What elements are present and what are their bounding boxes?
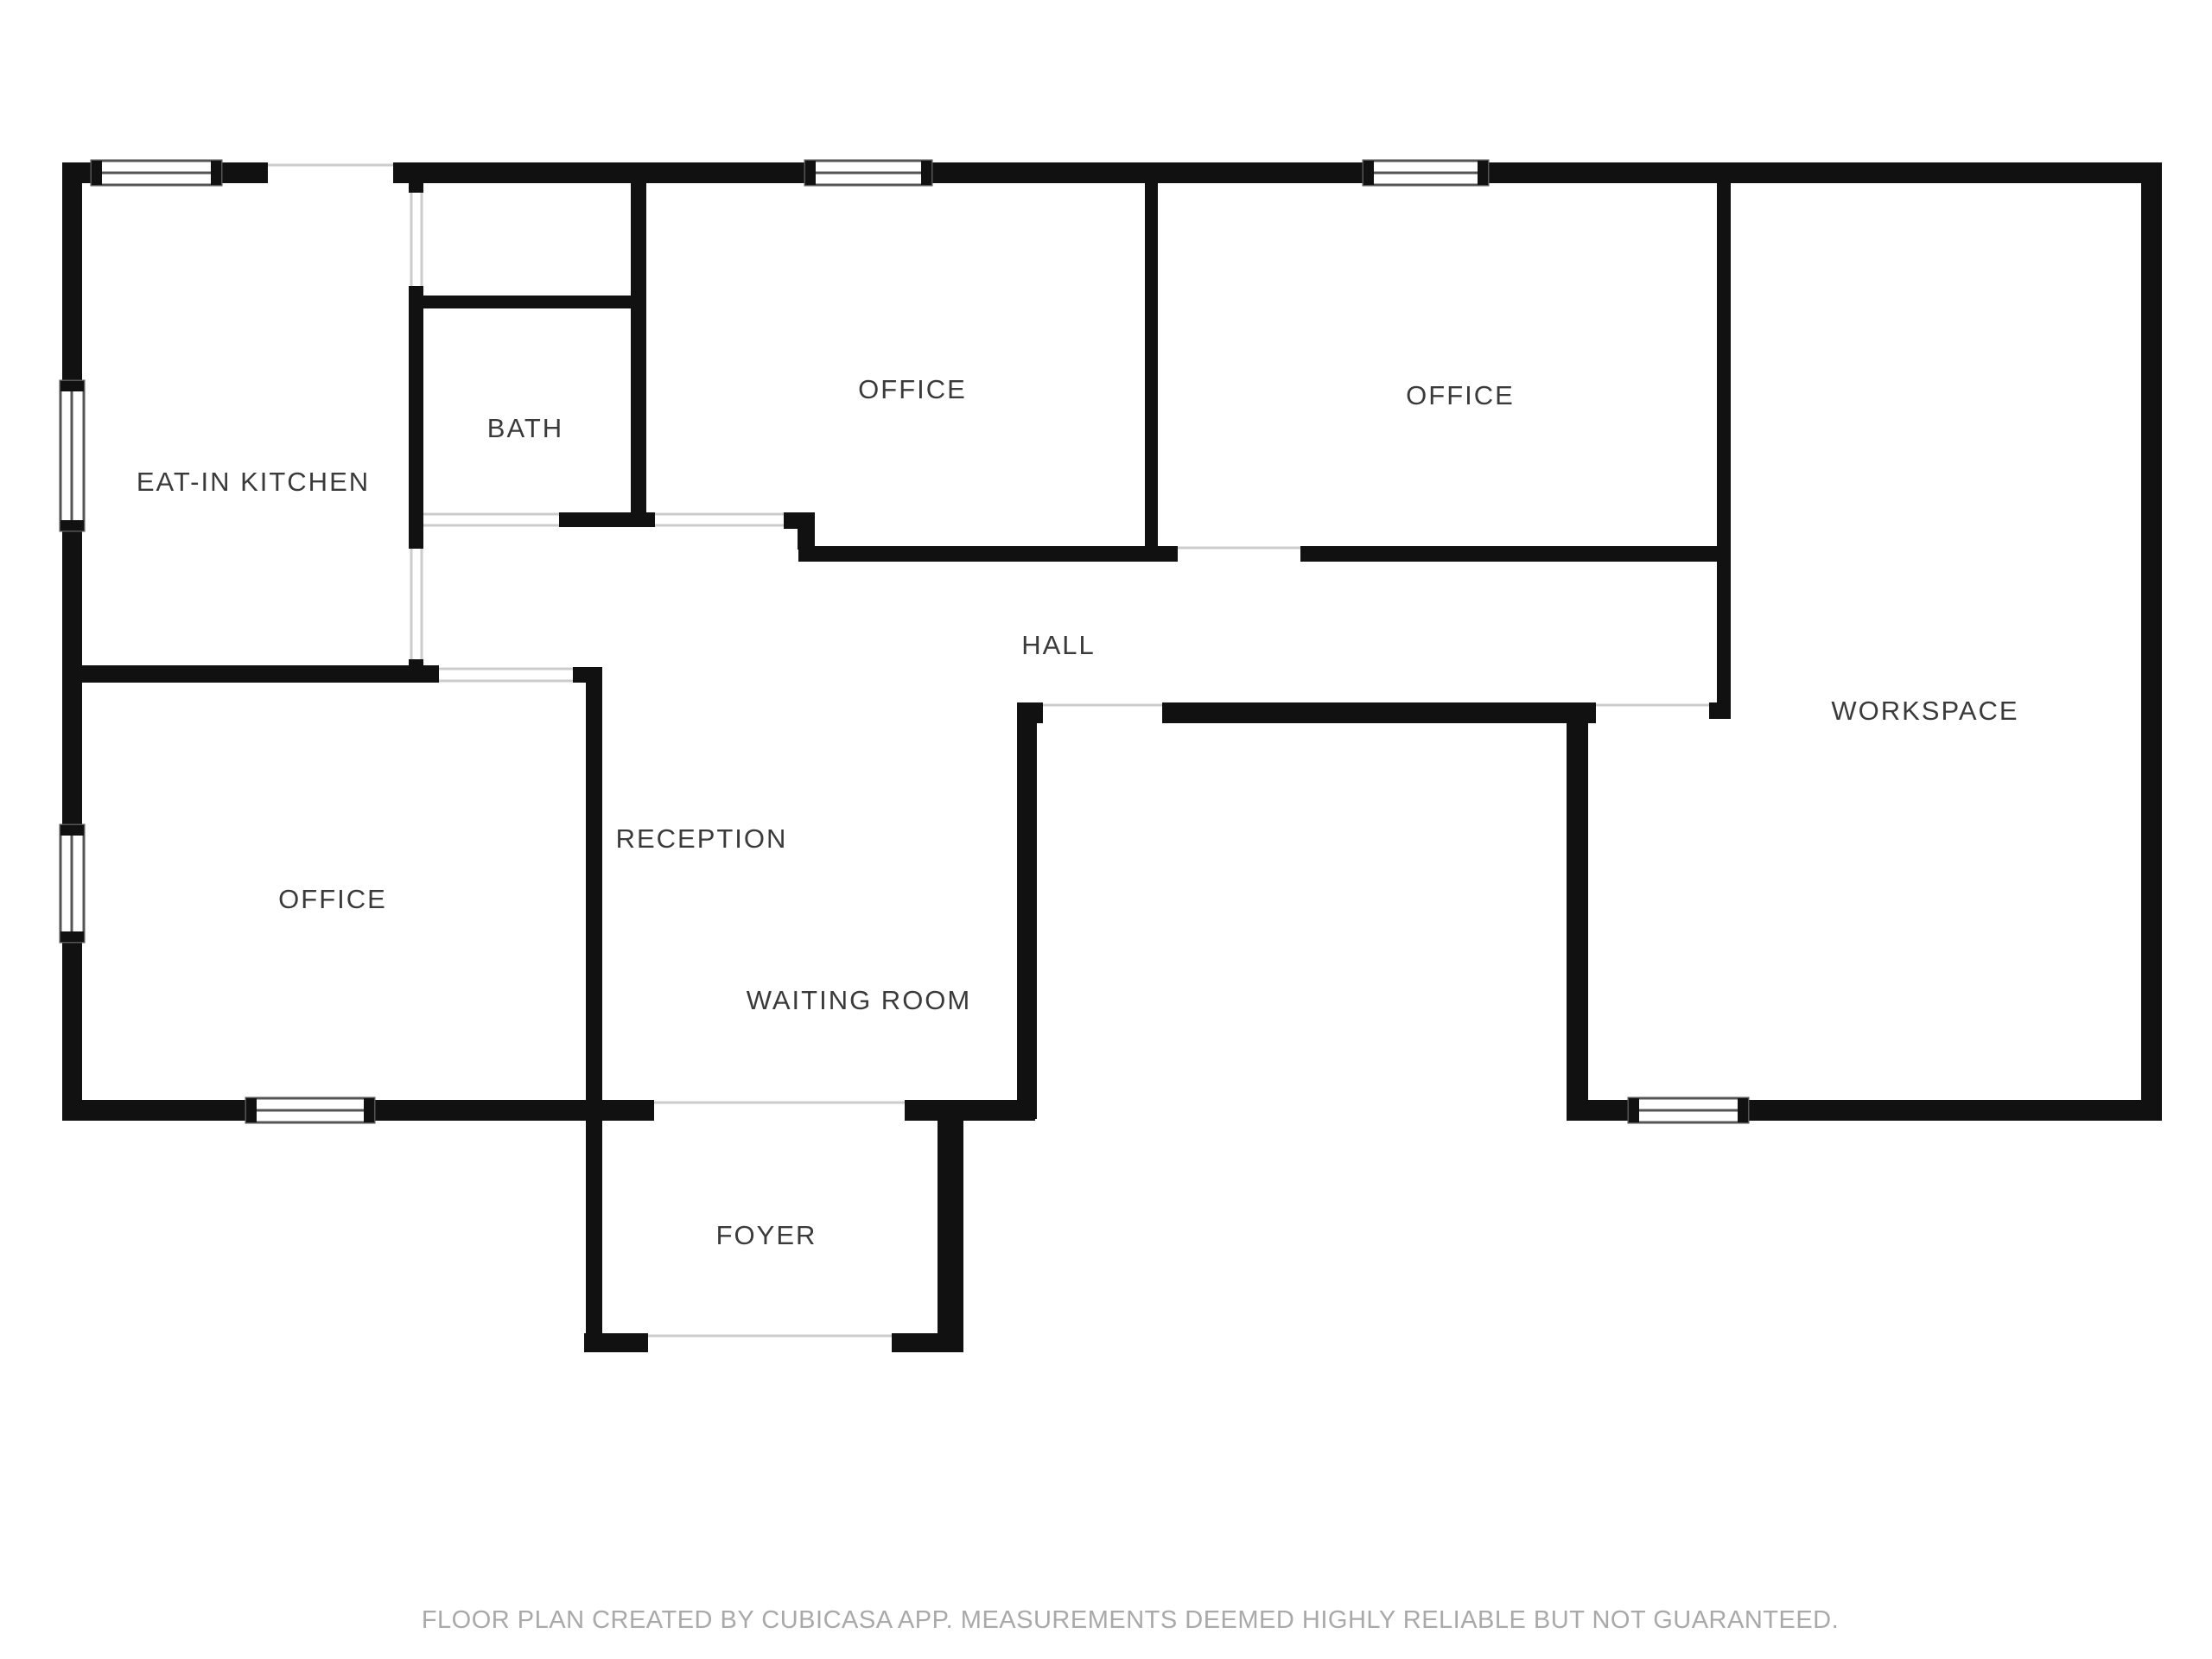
window — [92, 161, 221, 185]
window — [805, 161, 931, 185]
wall-segment — [905, 1100, 1035, 1121]
window — [1363, 161, 1488, 185]
wall-segment — [1567, 719, 1588, 1121]
window-cap — [246, 1098, 257, 1122]
wall-segment — [409, 286, 423, 549]
wall-segment — [2141, 162, 2162, 1121]
wall-segment — [393, 162, 805, 183]
wall-segment — [1709, 702, 1731, 719]
floor-plan-canvas: EAT-IN KITCHEN BATH OFFICE OFFICE HALL W… — [0, 0, 2212, 1659]
interior-walls — [82, 183, 1731, 1352]
wall-segment — [631, 183, 646, 527]
wall-segment — [1017, 702, 1043, 723]
wall-segment — [374, 1100, 602, 1121]
floor-plan-page: EAT-IN KITCHEN BATH OFFICE OFFICE HALL W… — [0, 0, 2212, 1659]
wall-segment — [62, 1100, 246, 1121]
window-cap — [211, 161, 221, 185]
window-cap — [60, 381, 84, 391]
window — [1629, 1098, 1748, 1122]
wall-segment — [216, 162, 268, 183]
footer-disclaimer: FLOOR PLAN CREATED BY CUBICASA APP. MEAS… — [422, 1606, 1839, 1634]
wall-segment — [1162, 702, 1596, 723]
wall-segment — [409, 183, 423, 193]
wall-segment — [82, 665, 439, 683]
wall-segment — [1717, 183, 1731, 702]
wall-segment — [1017, 723, 1037, 1119]
wall-segment — [1488, 162, 2162, 183]
exterior-walls — [62, 162, 2162, 1121]
room-label-office-top-left: OFFICE — [858, 374, 967, 404]
room-label-reception: RECEPTION — [616, 823, 788, 854]
window-cap — [60, 931, 84, 942]
wall-segment — [586, 667, 602, 1352]
room-label-waiting-room: WAITING ROOM — [747, 985, 972, 1015]
wall-segment — [559, 512, 655, 527]
room-label-hall: HALL — [1021, 630, 1096, 660]
wall-segment — [784, 512, 815, 529]
window-cap — [805, 161, 816, 185]
window-cap — [1738, 1098, 1748, 1122]
wall-segment — [1748, 1100, 2162, 1121]
window-cap — [364, 1098, 374, 1122]
room-label-eat-in-kitchen: EAT-IN KITCHEN — [137, 467, 370, 497]
door-openings — [268, 165, 1709, 1336]
window — [60, 825, 84, 942]
window — [60, 381, 84, 531]
wall-segment — [892, 1333, 963, 1352]
wall-segment — [798, 546, 1178, 562]
room-label-workspace: WORKSPACE — [1831, 696, 2018, 726]
wall-segment — [1300, 546, 1717, 562]
window-cap — [60, 825, 84, 836]
room-label-bath: BATH — [487, 413, 563, 443]
window-cap — [1363, 161, 1374, 185]
window-cap — [1478, 161, 1488, 185]
wall-segment — [409, 296, 646, 308]
room-label-office-bottom-left: OFFICE — [278, 884, 387, 914]
wall-segment — [931, 162, 1363, 183]
wall-segment — [938, 1119, 963, 1352]
window — [246, 1098, 374, 1122]
wall-segment — [602, 1100, 654, 1121]
window-cap — [92, 161, 102, 185]
room-label-office-top-right: OFFICE — [1406, 380, 1515, 410]
window-cap — [921, 161, 931, 185]
window-cap — [1629, 1098, 1639, 1122]
wall-segment — [62, 942, 82, 1121]
wall-segment — [1145, 183, 1158, 562]
window-cap — [60, 520, 84, 531]
wall-segment — [584, 1333, 648, 1352]
wall-segment — [62, 162, 82, 381]
windows — [60, 161, 1748, 1122]
wall-segment — [1588, 1100, 1629, 1121]
room-label-foyer: FOYER — [716, 1220, 817, 1250]
wall-segment — [62, 531, 82, 825]
